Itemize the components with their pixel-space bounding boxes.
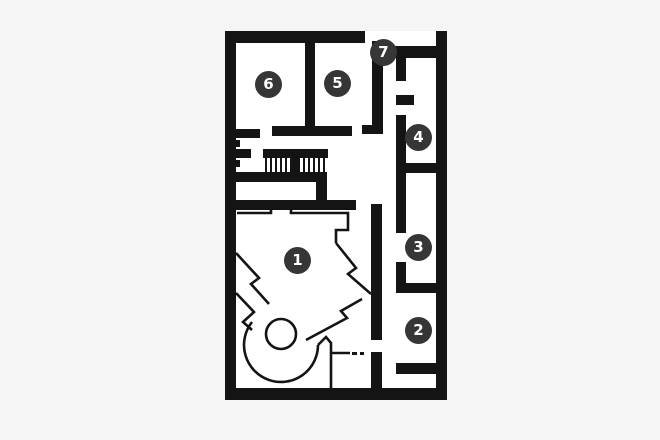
- wall-right-col-a: [396, 58, 406, 81]
- room-marker-label: 1: [292, 253, 302, 268]
- wall-rooms-bottom-a: [236, 129, 260, 138]
- wall-top-right: [395, 46, 436, 58]
- room-marker-3[interactable]: 3: [405, 234, 432, 261]
- floorplan: 1 2 3 4 5 6 7: [0, 0, 660, 440]
- room-marker-7[interactable]: 7: [370, 39, 397, 66]
- stairs-icon: [298, 158, 326, 172]
- room-marker-label: 5: [332, 76, 342, 91]
- stairs-icon: [265, 158, 292, 172]
- wall-center-vertical-b: [371, 352, 382, 388]
- room-marker-4[interactable]: 4: [405, 124, 432, 151]
- room-marker-2[interactable]: 2: [405, 317, 432, 344]
- room-marker-1[interactable]: 1: [284, 247, 311, 274]
- wall-below-stairs: [235, 172, 326, 182]
- room-marker-label: 4: [413, 130, 423, 145]
- door-jamb-mark: [352, 352, 357, 355]
- door-jamb-mark: [236, 140, 240, 147]
- room-marker-label: 7: [378, 45, 388, 60]
- wall-left: [225, 31, 236, 400]
- wall-room3-bottom: [396, 283, 436, 293]
- room-marker-label: 6: [263, 77, 273, 92]
- wall-room2-shelf: [396, 363, 436, 374]
- wall-bottom: [225, 388, 447, 400]
- wall-rooms-bottom-b: [272, 126, 352, 136]
- wall-center-vertical-a: [371, 204, 382, 340]
- door-jamb-mark: [236, 160, 240, 167]
- stairs-top-wall: [263, 149, 328, 158]
- room-marker-label: 3: [413, 240, 423, 255]
- wall-room-divider-5-6: [305, 40, 315, 136]
- door-jamb-mark: [360, 352, 364, 355]
- wall-right: [436, 31, 447, 400]
- wall-room5-foot: [362, 125, 383, 134]
- wall-top: [225, 31, 365, 43]
- room-marker-5[interactable]: 5: [324, 70, 351, 97]
- wall-room7-bottom: [396, 95, 414, 105]
- room-marker-6[interactable]: 6: [255, 71, 282, 98]
- room-marker-label: 2: [413, 323, 423, 338]
- wall-left-stub: [236, 149, 251, 158]
- wall-room3-left-a: [396, 173, 406, 233]
- wall-room4-bottom: [396, 163, 436, 173]
- wall-corridor: [225, 200, 356, 210]
